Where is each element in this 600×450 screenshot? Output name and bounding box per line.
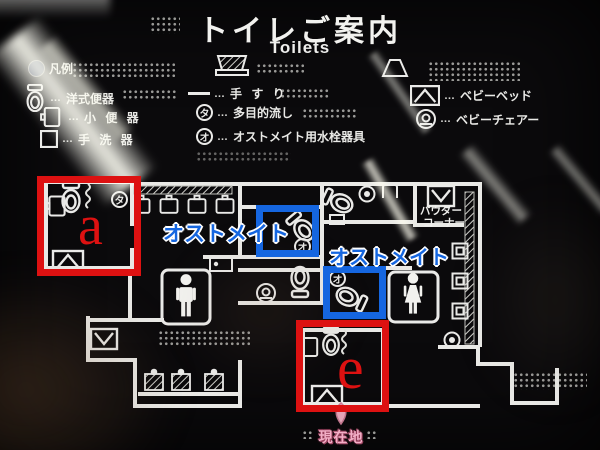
baby-chair-fixture [257, 284, 275, 302]
annotation-letter-a: a [78, 198, 103, 254]
toilet-fixture [321, 188, 355, 216]
annotation-box-blue-2[interactable] [323, 266, 386, 319]
sink-fixture [210, 258, 232, 271]
urinal-fixture [217, 196, 234, 213]
hatched-wall [465, 192, 474, 344]
powder-mirror-icon [428, 186, 454, 206]
ostomate-label-2: オストメイト [329, 241, 449, 270]
sink-fixture [383, 185, 397, 198]
round-fixture [360, 187, 375, 202]
mirror-icon [91, 329, 117, 349]
mens-room-sign [162, 270, 210, 324]
powder-corner-line2: コーナー [420, 218, 465, 230]
urinal-fixture [161, 196, 178, 213]
urinal-fixture [189, 196, 206, 213]
sink-fixture [205, 370, 223, 390]
you-are-here-label: 現在地 [310, 427, 372, 447]
toilet-fixture [292, 267, 309, 297]
sink-fixture [172, 370, 190, 390]
ostomate-label-1: オストメイト [163, 218, 289, 248]
powder-corner-line1: パウダー [420, 206, 465, 218]
powder-corner-label: パウダー コーナー [420, 206, 465, 229]
womens-room-sign [389, 272, 438, 322]
annotation-letter-e: e [337, 338, 364, 398]
sink-fixture [145, 370, 163, 390]
toilet-guide-sign-photo: トイレご案内 Toilets 凡例 … 洋式便器 … 小 便 器 … 手 洗 器… [0, 0, 600, 450]
hatched-wall [134, 186, 232, 194]
